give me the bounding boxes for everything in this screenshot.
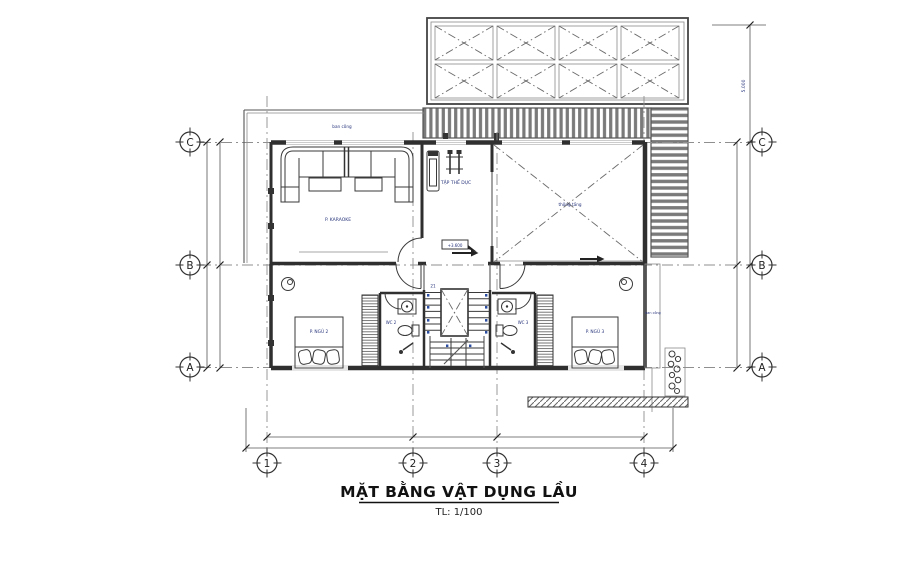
svg-text:C: C	[186, 137, 193, 149]
grid-bubble-3: 3	[483, 449, 512, 478]
door-arc-bedroom-left	[396, 264, 421, 289]
walls-lower	[268, 264, 645, 372]
grid-bubble-a-left: A	[176, 353, 205, 382]
grid-bubble-a-right: A	[748, 353, 777, 382]
wardrobe-hatch-left	[362, 295, 378, 366]
page-title: MẶT BẰNG VẬT DỤNG LẦU	[340, 480, 578, 501]
title-block: MẶT BẰNG VẬT DỤNG LẦU TL: 1/100	[340, 480, 578, 518]
stair-count-label: 21	[430, 284, 436, 289]
svg-text:3: 3	[494, 458, 501, 470]
door-arc-bedroom-right	[500, 264, 525, 289]
grid-bubble-b-left: B	[176, 251, 205, 280]
stairs	[424, 289, 490, 368]
svg-text:B: B	[186, 260, 193, 272]
svg-text:B: B	[758, 260, 765, 272]
level-value: +3.600	[448, 243, 463, 248]
svg-text:C: C	[758, 137, 765, 149]
plant-icon	[620, 278, 633, 291]
svg-text:4: 4	[641, 458, 648, 470]
balcony-slab-hatch	[528, 368, 688, 412]
svg-text:A: A	[186, 362, 194, 374]
pergola-louvers-top	[423, 108, 651, 141]
balcony-right-label: ban công	[645, 311, 661, 315]
weight-rack-icon	[446, 150, 463, 174]
balcony-top-label: ban công	[332, 124, 352, 129]
shower-icon	[511, 350, 515, 354]
shower-icon	[399, 350, 403, 354]
plant-icon	[282, 278, 295, 291]
dimension-lines-left	[204, 139, 224, 372]
grid-bubble-c-right: C	[748, 128, 777, 157]
toilet-icon	[503, 326, 517, 336]
bedroom-left-label: P. NGỦ 2	[310, 327, 329, 335]
gym-label: TẬP THỂ DỤC	[440, 178, 471, 186]
dimension-lines-right	[734, 139, 754, 372]
direction-arrow-void	[580, 256, 605, 263]
scale-label: TL: 1/100	[434, 507, 482, 518]
grid-bubble-b-right: B	[748, 251, 777, 280]
roof-panel-grid	[427, 18, 688, 104]
coffee-table	[309, 178, 341, 191]
planter-rocks	[665, 348, 685, 396]
svg-text:A: A	[758, 362, 766, 374]
wardrobe-hatch-right	[537, 295, 553, 366]
wc-left-label: WC 2	[386, 320, 397, 325]
bedroom-right-label: P. NGỦ 3	[586, 327, 605, 335]
void-label: thông tầng	[558, 202, 581, 207]
stair-step-numbers	[427, 294, 487, 347]
plan-svg: ban công	[0, 0, 900, 565]
wc-right-label: WC 3	[518, 320, 529, 325]
dimension-lines-bottom	[243, 408, 677, 452]
bed-double-right	[572, 317, 618, 368]
dimension-roof-height	[712, 22, 766, 143]
roof-height-value: 5.000	[741, 79, 747, 92]
balcony-right-strip	[645, 264, 660, 368]
pergola-louvers-right	[651, 108, 688, 257]
door-arc-karaoke	[398, 238, 422, 262]
grid-bubble-c-left: C	[176, 128, 205, 157]
grid-bubble-2: 2	[399, 449, 428, 478]
svg-text:2: 2	[410, 458, 417, 470]
grid-bubble-4: 4	[630, 449, 659, 478]
svg-text:1: 1	[264, 458, 271, 470]
toilet-icon	[398, 326, 412, 336]
coffee-table	[355, 178, 382, 191]
floor-plan-drawing: ban công	[0, 0, 900, 565]
bed-double-left	[295, 317, 343, 368]
karaoke-room-label: P. KARAOKE	[325, 217, 351, 223]
sofa	[281, 147, 413, 202]
treadmill-icon	[427, 151, 439, 191]
grid-bubble-1: 1	[253, 449, 282, 478]
